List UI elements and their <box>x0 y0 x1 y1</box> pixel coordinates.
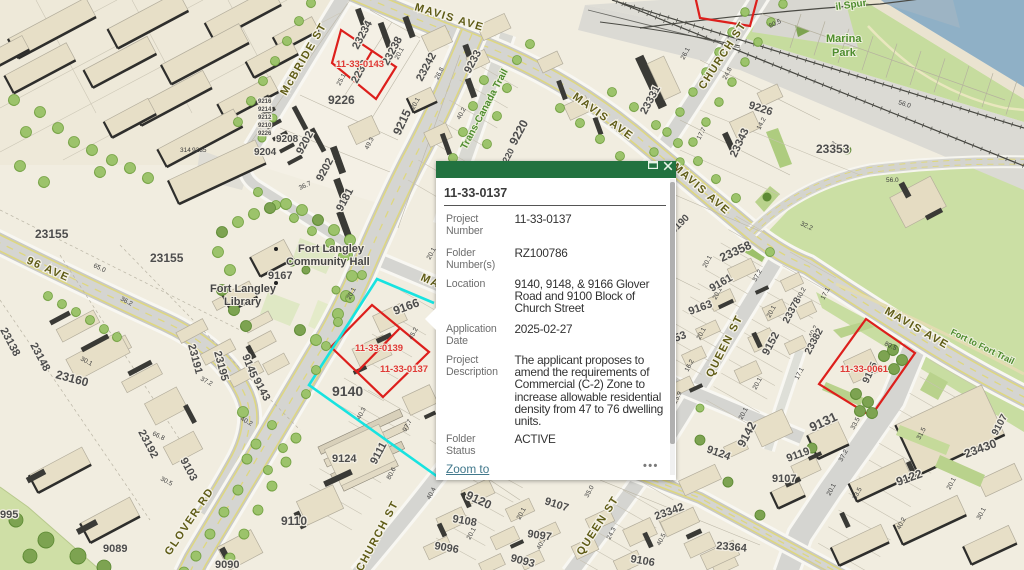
svg-text:11-33-0143: 11-33-0143 <box>336 59 384 70</box>
svg-text:9167: 9167 <box>268 270 292 282</box>
svg-text:9110: 9110 <box>281 514 307 528</box>
svg-text:9226: 9226 <box>258 131 272 137</box>
svg-text:9107: 9107 <box>772 473 796 485</box>
svg-text:9140: 9140 <box>332 383 363 399</box>
svg-text:314: 314 <box>180 147 191 154</box>
svg-text:Fort Langley: Fort Langley <box>210 283 277 295</box>
svg-text:9214: 9214 <box>258 107 272 113</box>
svg-text:23155: 23155 <box>150 251 184 265</box>
svg-text:9235: 9235 <box>192 147 207 154</box>
svg-text:11-33-0061: 11-33-0061 <box>840 364 889 375</box>
svg-text:9226: 9226 <box>328 93 355 107</box>
svg-text:23155: 23155 <box>35 227 69 241</box>
svg-text:Library: Library <box>224 296 262 308</box>
svg-text:Marina: Marina <box>826 33 862 45</box>
svg-text:9090: 9090 <box>215 559 239 570</box>
svg-text:9124: 9124 <box>332 453 357 465</box>
svg-text:11-33-0137: 11-33-0137 <box>380 364 428 375</box>
svg-text:9216: 9216 <box>258 99 272 105</box>
svg-text:Fort Langley: Fort Langley <box>298 243 365 255</box>
svg-text:9208: 9208 <box>276 134 299 145</box>
svg-text:Park: Park <box>832 47 857 59</box>
svg-text:9204: 9204 <box>254 147 277 158</box>
svg-text:56.0: 56.0 <box>886 177 899 184</box>
svg-text:995: 995 <box>0 509 18 521</box>
svg-text:11-33-0139: 11-33-0139 <box>355 343 403 354</box>
svg-text:9210: 9210 <box>258 123 272 129</box>
svg-text:23353: 23353 <box>816 142 850 156</box>
svg-text:9089: 9089 <box>103 543 127 555</box>
svg-text:9212: 9212 <box>258 115 272 121</box>
svg-text:Community Hall: Community Hall <box>286 256 370 268</box>
